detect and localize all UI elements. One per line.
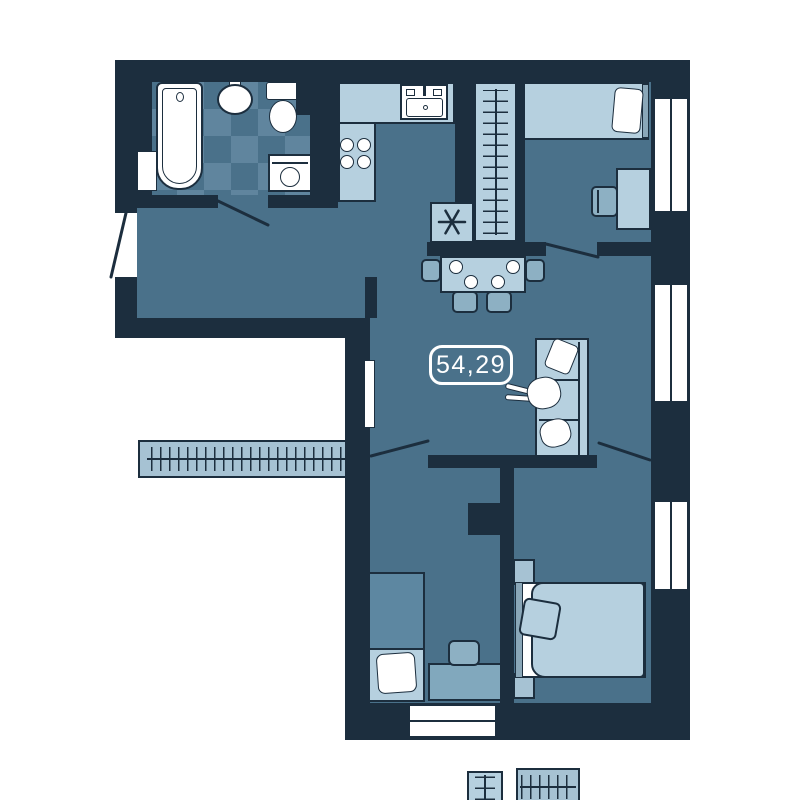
bed-bl-blanket: [367, 572, 425, 650]
dining-chair-left: [421, 259, 441, 282]
washing-machine: [268, 154, 312, 192]
area-label-text: 54,29: [436, 351, 506, 380]
wall-hall-stub: [365, 277, 377, 318]
plate-4: [506, 260, 520, 274]
window-bedroom-top: [653, 97, 689, 213]
entry-door-swing: [111, 213, 126, 277]
wall-bath-bottom-left: [137, 195, 218, 208]
washbasin: [217, 84, 253, 115]
dining-chair-bottom-1: [452, 291, 478, 313]
washing-machine-panel: [272, 162, 308, 164]
chair-top-bedroom: [591, 186, 618, 217]
dining-chair-bottom-2: [486, 291, 512, 313]
toilet-bowl: [269, 100, 297, 133]
sink-knob-right: [433, 89, 442, 96]
chair-bl: [448, 640, 480, 666]
wall-b: [428, 455, 597, 468]
plate-3: [491, 275, 505, 289]
wall-closet-block: [468, 503, 503, 535]
vent-shaft-box: [430, 202, 474, 243]
built-in-wardrobe-top: [474, 82, 517, 242]
bed-top-pillow: [611, 87, 644, 134]
bathtub: [156, 82, 203, 190]
living-radiator: [364, 360, 375, 428]
closet-br-top: [516, 768, 580, 800]
wall-bottom: [345, 703, 690, 740]
kitchen-sink: [400, 84, 448, 120]
bathtub-inner-rim: [162, 88, 197, 184]
plate-2: [464, 275, 478, 289]
wall-a-right: [597, 242, 651, 256]
plate-1: [449, 260, 463, 274]
window-bedroom-bl: [408, 704, 497, 738]
sink-knob-left: [406, 89, 415, 96]
dining-chair-right: [525, 259, 545, 282]
wall-bath-kitchen: [310, 60, 338, 208]
stove-burner-2: [357, 138, 371, 152]
wall-duct: [296, 82, 310, 115]
hallway-wardrobe-notch: [138, 303, 158, 318]
floor-plan: 54,29: [0, 0, 800, 800]
wall-wardrobe-right: [517, 82, 525, 256]
area-label-badge: 54,29: [429, 345, 513, 385]
window-bedroom-br: [653, 500, 689, 591]
bathtub-drain: [176, 92, 184, 102]
wall-top: [115, 60, 690, 82]
bed-br-pillow: [518, 597, 562, 641]
wall-a-stub: [517, 242, 546, 256]
sink-drain: [423, 105, 428, 110]
sofa-backrest-line: [578, 342, 580, 455]
stove-burner-3: [340, 155, 354, 169]
desk-top-bedroom: [616, 168, 651, 230]
stove-burner-1: [340, 138, 354, 152]
chair-back-line: [597, 190, 599, 213]
hallway-wardrobe: [138, 440, 365, 478]
desk-bl: [428, 663, 503, 701]
window-living: [653, 283, 689, 403]
bed-bl-pillow: [376, 652, 418, 695]
sink-faucet: [423, 86, 426, 96]
wardrobe-bl-side: [467, 771, 503, 800]
towel-radiator: [137, 151, 157, 191]
wall-left-stub: [115, 195, 137, 213]
stove-burner-4: [357, 155, 371, 169]
washing-machine-door: [280, 167, 300, 187]
wall-hall-bottom: [115, 318, 370, 338]
wall-kitchen-wardrobe: [455, 82, 474, 204]
